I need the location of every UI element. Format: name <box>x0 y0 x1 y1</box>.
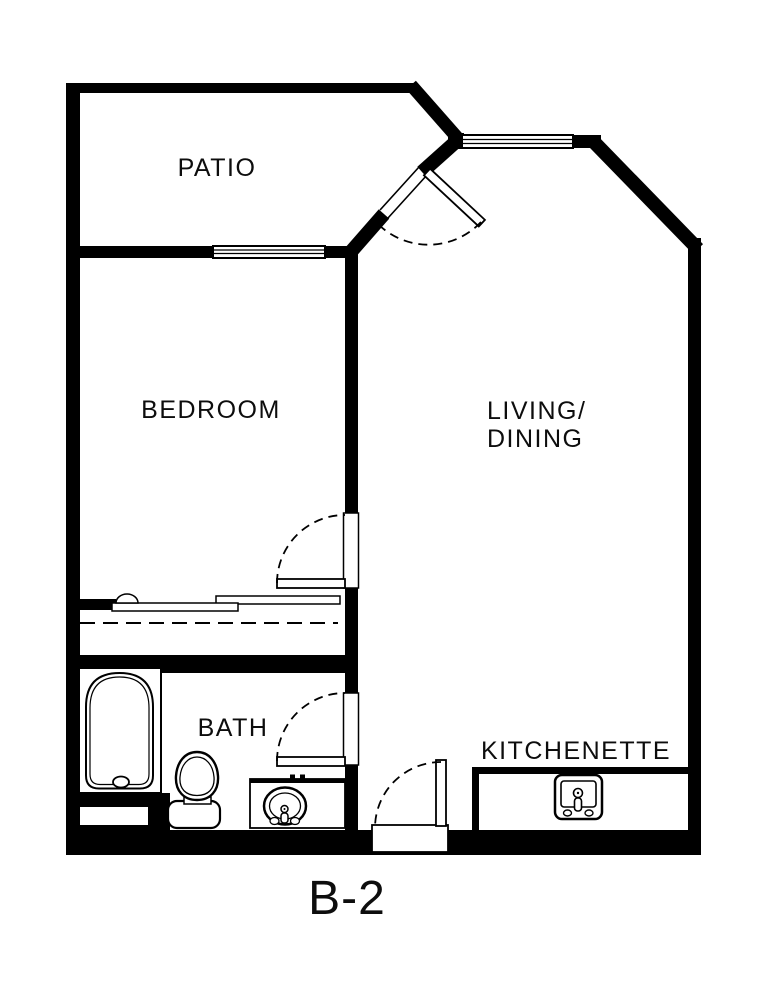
room-label-bedroom: BEDROOM <box>141 396 281 424</box>
window-patio-bedroom <box>213 246 325 258</box>
plan-title: B-2 <box>308 872 386 925</box>
wall-angle-northeast <box>592 140 698 249</box>
room-label-kitchenette: KITCHENETTE <box>481 737 671 765</box>
room-label-bath: BATH <box>198 714 269 742</box>
wall-right <box>688 238 701 855</box>
bathtub <box>79 668 161 793</box>
floor-plan-page: PATIO BEDROOM LIVING/ DINING BATH KITCHE… <box>0 0 767 998</box>
window-living-north <box>462 135 573 148</box>
sink-faucet <box>575 798 582 811</box>
room-label-patio: PATIO <box>178 154 257 182</box>
patio-door-jamb-line <box>380 167 419 210</box>
kitchenette-sink <box>555 775 602 819</box>
faucet-handle <box>300 775 305 779</box>
walls-angled <box>349 85 698 254</box>
bedroom-door-swing <box>277 513 359 588</box>
room-label-living-line2: DINING <box>487 425 584 453</box>
wall-angle-patio-door-lower <box>349 214 384 254</box>
entry-door-swing <box>372 760 448 852</box>
wall-left <box>66 83 80 855</box>
closet-sliding-doors <box>112 594 340 611</box>
patio-door-jamb-line <box>388 175 427 218</box>
floor-plan-drawing: PATIO BEDROOM LIVING/ DINING BATH KITCHE… <box>0 0 767 998</box>
sliding-door-handle <box>116 594 138 603</box>
bath-shelf <box>79 806 149 826</box>
patio-door-swing <box>377 169 485 245</box>
faucet-handle <box>290 775 295 779</box>
room-label-living-line1: LIVING/ <box>487 397 586 425</box>
sink-faucet <box>281 813 288 823</box>
bathroom-sink-vanity <box>250 775 345 829</box>
bath-door-swing <box>277 693 359 766</box>
wall-patio-top <box>66 83 418 93</box>
wall-angle-patio-door-upper <box>422 138 460 172</box>
tub-drain <box>113 777 129 788</box>
wall-closet-stub <box>80 599 116 610</box>
toilet <box>168 752 220 828</box>
